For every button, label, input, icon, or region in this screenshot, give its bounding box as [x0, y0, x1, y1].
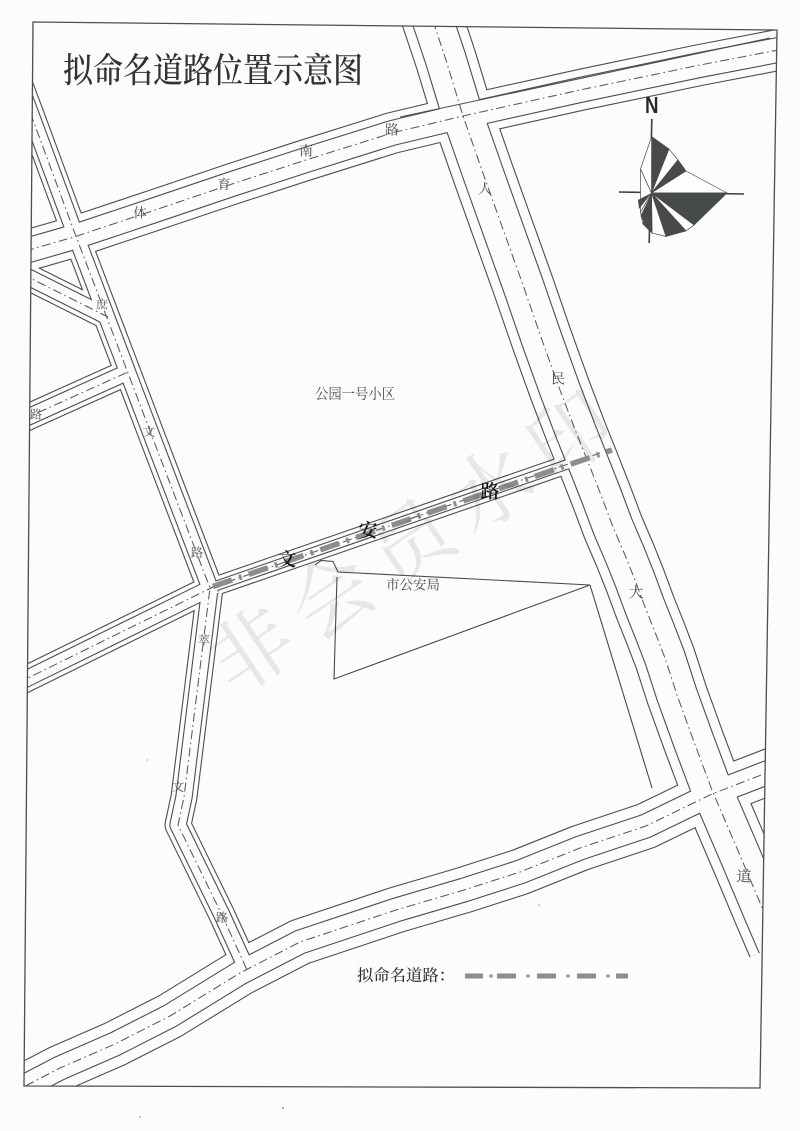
svg-text:路: 路 [216, 908, 229, 926]
svg-text:拟命名道路：: 拟命名道路： [357, 962, 455, 986]
svg-text:路: 路 [191, 543, 204, 561]
svg-text:庶: 庶 [96, 296, 108, 313]
svg-text:公园一号小区: 公园一号小区 [315, 383, 395, 404]
svg-text:N: N [645, 92, 659, 118]
svg-text:拟命名道路位置示意图: 拟命名道路位置示意图 [63, 44, 363, 94]
svg-text:育: 育 [217, 173, 231, 193]
svg-text:人: 人 [478, 178, 492, 198]
svg-text:体: 体 [133, 202, 147, 222]
svg-text:文: 文 [172, 777, 185, 795]
svg-text:路: 路 [30, 406, 42, 423]
svg-text:南: 南 [299, 140, 313, 160]
svg-text:路: 路 [385, 119, 399, 139]
svg-text:大: 大 [628, 582, 643, 603]
svg-text:文: 文 [143, 422, 156, 440]
svg-text:道: 道 [736, 866, 751, 887]
